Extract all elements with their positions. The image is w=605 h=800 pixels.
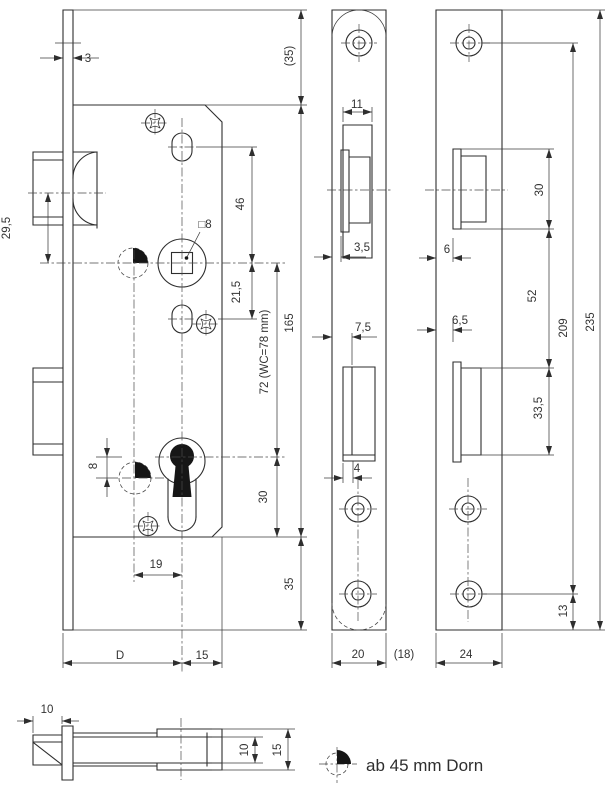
- backset-note: ab 45 mm Dorn: [319, 747, 483, 783]
- dim-label-15-right: 15: [272, 744, 284, 757]
- dim-label-30-left: 30: [258, 491, 270, 504]
- note-marker-quarter-icon: [337, 750, 351, 764]
- mortise-lock-drawing: 3 29,5 46 □8 21,5 72 (WC=78 mm) 30 (35) …: [0, 0, 605, 800]
- dim-label-209: 209: [558, 318, 570, 337]
- dim-label-52: 52: [527, 290, 539, 303]
- latch-bolt-labels: 10 10 15: [41, 704, 284, 756]
- faceplate-front-view: 11 3,5 7,5 4 20 (18): [312, 10, 414, 668]
- leader-dot: [185, 256, 189, 260]
- dim-label-4: 4: [354, 463, 361, 475]
- dim-label-20: 20: [352, 649, 365, 661]
- dim-label-3-5: 3,5: [354, 242, 370, 254]
- dim-label-10-top: 10: [41, 704, 54, 716]
- strike-plate-labels: 30 6 52 6,5 33,5 209 13 235 24: [444, 184, 597, 661]
- dim-label-10-right: 10: [239, 744, 251, 757]
- dim-label-faceplate-thickness: 3: [85, 53, 91, 65]
- lock-body-outline: [33, 10, 222, 630]
- dim-label-46: 46: [235, 198, 247, 211]
- lock-body-labels: 3 29,5 46 □8 21,5 72 (WC=78 mm) 30 (35) …: [1, 46, 296, 662]
- dim-label-backset-d: D: [116, 650, 124, 662]
- latch-bolt-detail-view: 10 10 15: [17, 704, 295, 780]
- lock-body-view: 3 29,5 46 □8 21,5 72 (WC=78 mm) 30 (35) …: [1, 10, 307, 672]
- dim-label-21-5: 21,5: [231, 281, 243, 303]
- dim-label-33-5: 33,5: [533, 397, 545, 419]
- dim-label-72-wc78: 72 (WC=78 mm): [259, 309, 271, 394]
- note-text: ab 45 mm Dorn: [366, 756, 483, 775]
- strike-plate-extension-lines: [436, 10, 605, 668]
- dim-label-6: 6: [444, 244, 450, 256]
- dim-label-13: 13: [558, 605, 570, 618]
- dim-label-235: 235: [585, 312, 597, 331]
- lock-body-centerlines: [28, 109, 287, 672]
- backset-marker-icon: [118, 248, 151, 494]
- technical-drawing-canvas: 3 29,5 46 □8 21,5 72 (WC=78 mm) 30 (35) …: [0, 0, 605, 800]
- dim-label-7-5: 7,5: [355, 322, 371, 334]
- strike-plate-view: 30 6 52 6,5 33,5 209 13 235 24: [417, 10, 605, 668]
- dim-label-19: 19: [150, 559, 163, 571]
- dim-label-35-top: (35): [284, 46, 296, 67]
- dim-label-165: 165: [284, 313, 296, 332]
- dim-label-30-right: 30: [534, 184, 546, 197]
- faceplate-screw-holes: [345, 30, 372, 607]
- dim-label-11: 11: [351, 99, 363, 111]
- latch-bolt-extension-lines: [33, 716, 295, 770]
- dim-label-24: 24: [460, 649, 473, 661]
- dim-label-6-5: 6,5: [452, 315, 468, 327]
- faceplate-labels: 11 3,5 7,5 4 20 (18): [351, 99, 414, 661]
- dim-label-35-bottom: 35: [284, 578, 296, 591]
- latch-bolt-outline: [33, 726, 222, 780]
- dim-label-square8: □8: [198, 219, 211, 231]
- strike-plate-dimensions: [417, 10, 600, 663]
- faceplate-extension-lines: [332, 107, 386, 668]
- dim-label-15: 15: [196, 650, 209, 662]
- strike-plate-outline: [436, 10, 502, 630]
- latch-bevel-arcs: [73, 152, 97, 225]
- dim-label-8: 8: [88, 463, 100, 469]
- dim-label-latch-to-follower: 29,5: [1, 217, 13, 239]
- dim-label-18-alt: (18): [394, 649, 415, 661]
